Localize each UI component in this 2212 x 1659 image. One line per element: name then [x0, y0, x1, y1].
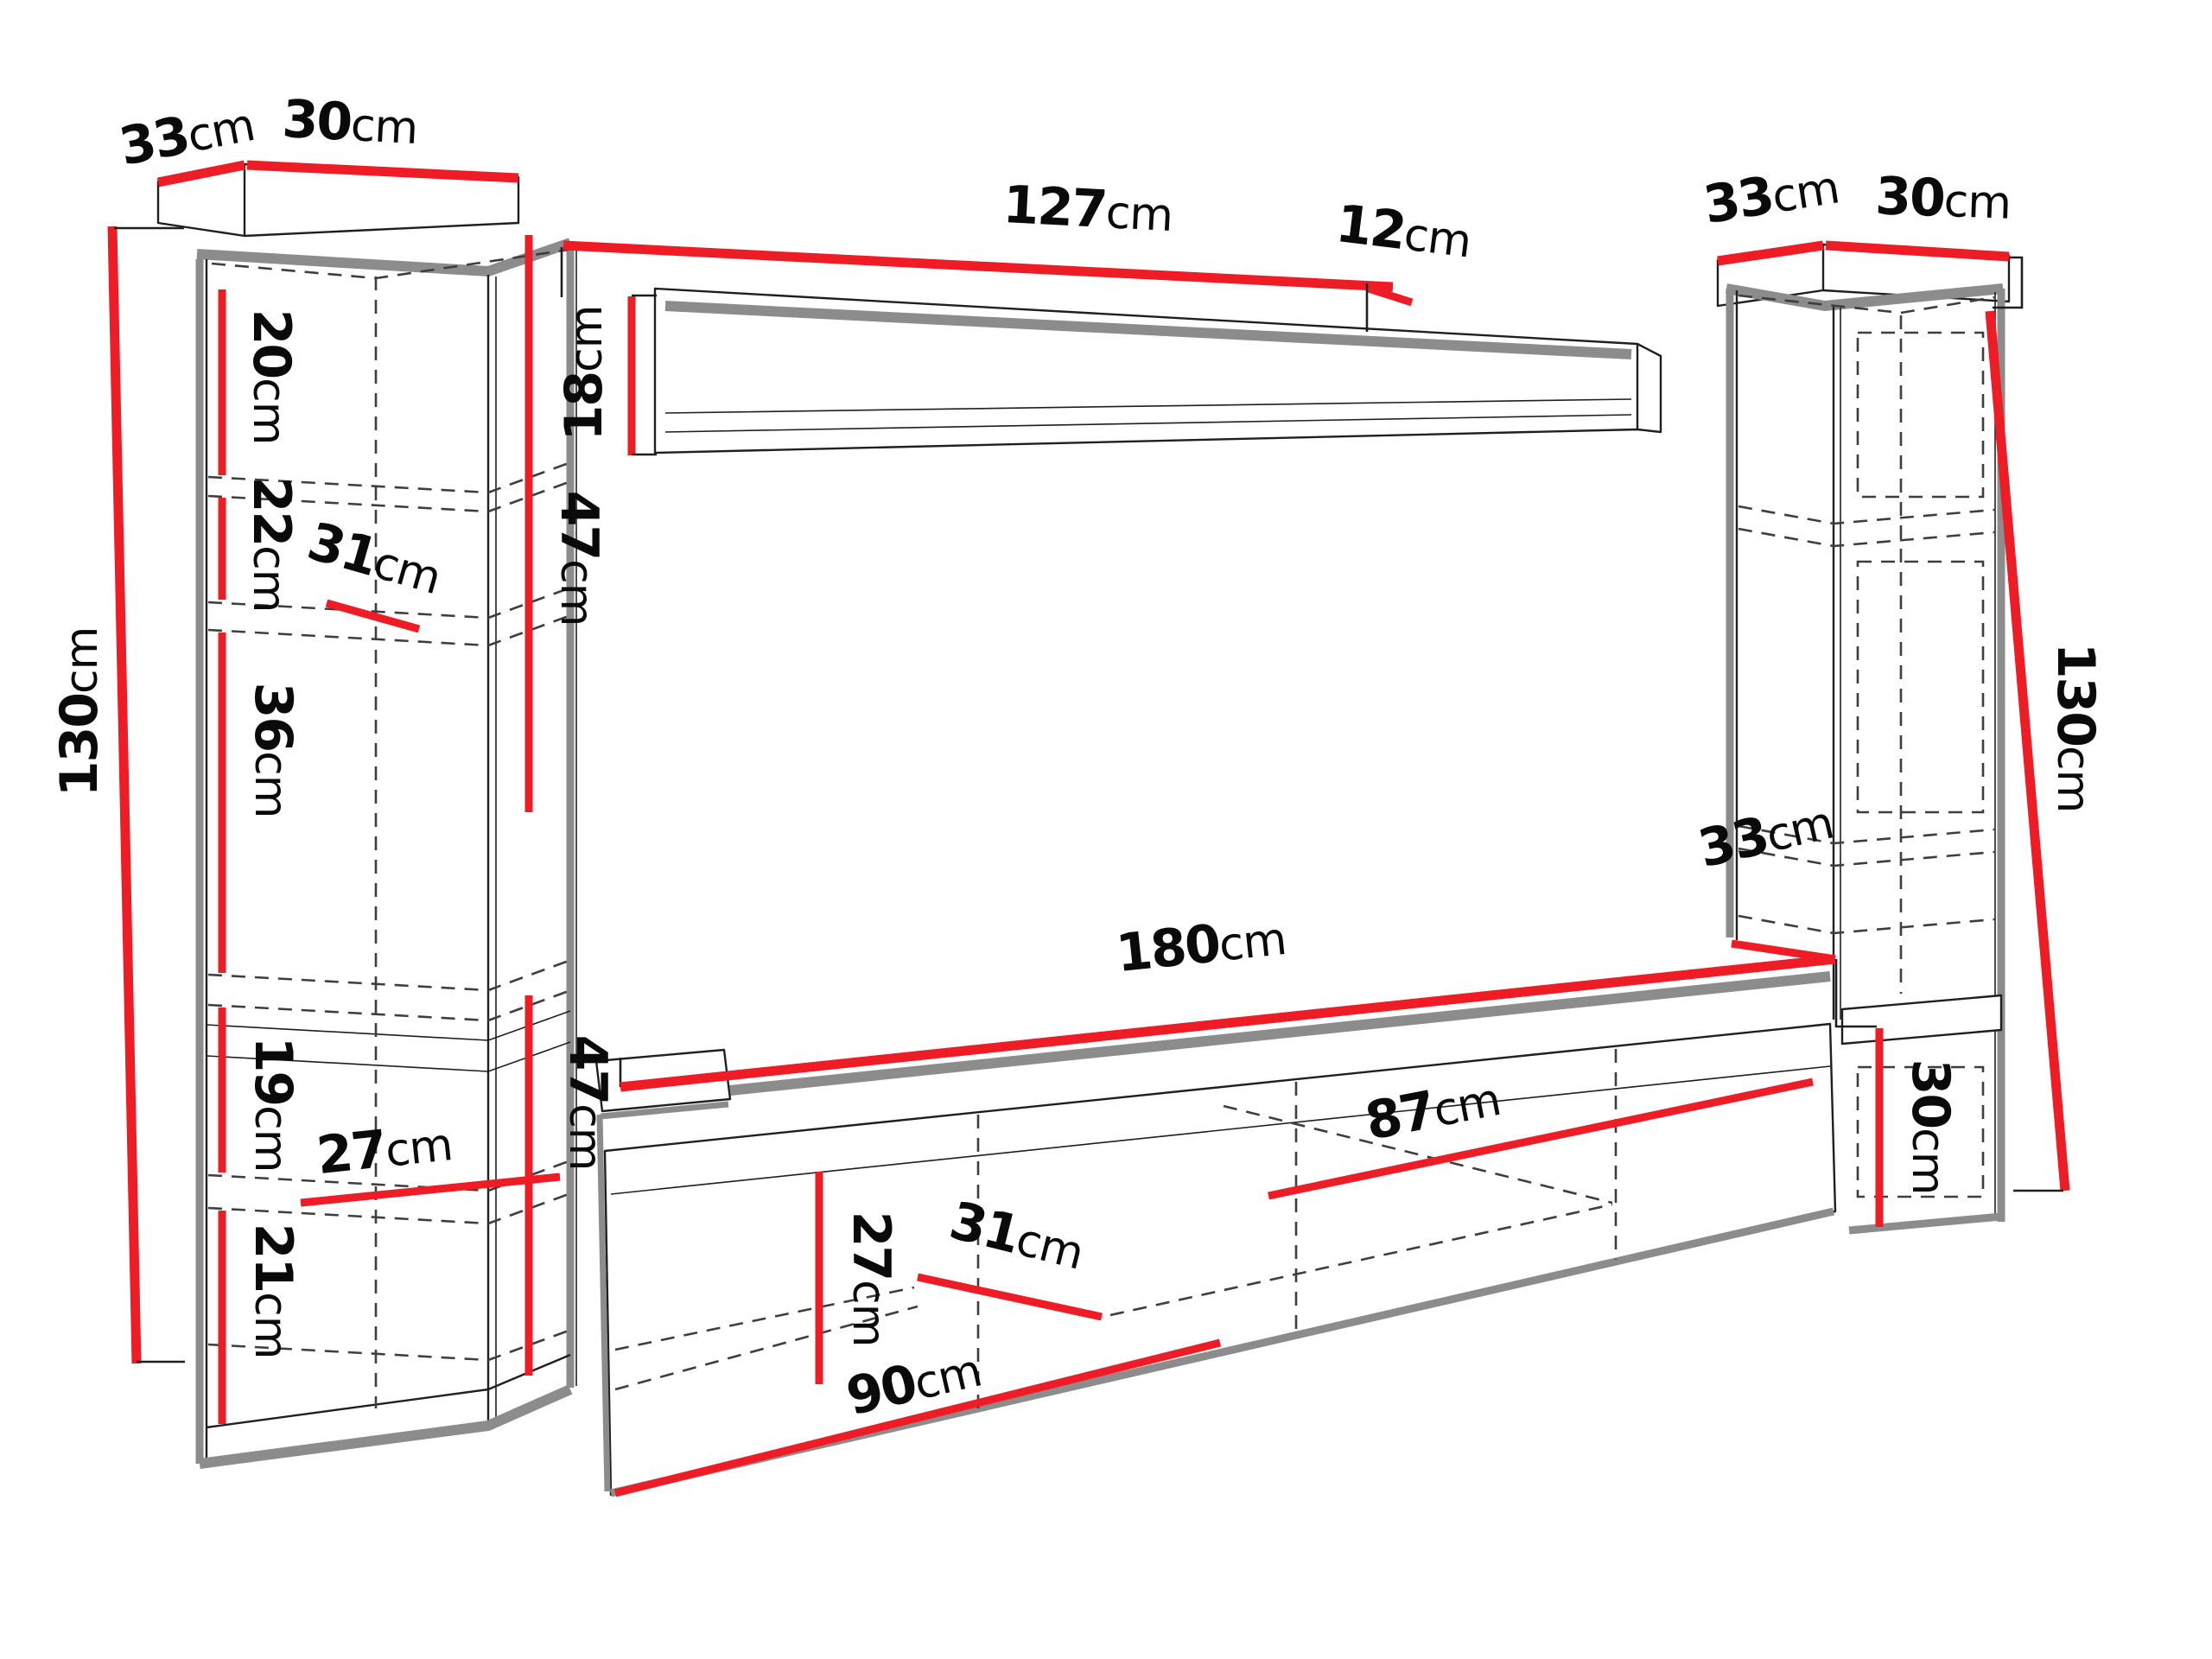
label-left-shelf-depth: 31cm [302, 512, 448, 607]
label-left-sec4: 19cm [243, 1037, 303, 1173]
label-left-top-width: 30cm [281, 89, 419, 156]
label-shelf-height: 18cm [554, 306, 614, 442]
right-cabinet-shelfA-dashed-a [1738, 506, 1994, 524]
right-cabinet-door-dashed-mid [1858, 562, 1983, 812]
label-right-lower-height: 30cm [1900, 1059, 1961, 1195]
left-cabinet [112, 164, 576, 1467]
dim-line-shelf-width [563, 245, 1393, 287]
right-cabinet-door-dashed-upper [1858, 333, 1983, 497]
left-cabinet-shelf3-dashed-a [208, 961, 569, 990]
label-shelf-end-depth: 12cm [1332, 194, 1474, 270]
wall-shelf [562, 245, 1661, 455]
furniture-dimension-diagram: 33cm 30cm 130cm 20cm 22cm 31cm 36cm 19cm… [0, 0, 2212, 1659]
label-left-sec2: 22cm [241, 477, 302, 613]
left-cabinet-bottom-shadow [200, 1389, 570, 1464]
label-left-sec1: 20cm [241, 309, 302, 445]
label-left-sec5: 21cm [243, 1224, 303, 1359]
right-cabinet-lower-cap [1842, 995, 2001, 1044]
label-left-sec3: 36cm [243, 683, 303, 818]
left-cabinet-shelf4-dashed-b [208, 1194, 569, 1224]
label-stand-inner-height: 27cm [841, 1211, 901, 1347]
label-right-top-depth: 33cm [1700, 155, 1843, 236]
label-left-height: 130cm [49, 627, 110, 798]
dim-line-left-shelf-depth [327, 603, 419, 629]
label-left-side-upper: 47cm [549, 491, 609, 626]
label-stand-right-depth: 33cm [1693, 791, 1838, 880]
tv-stand-front-face [605, 1024, 1835, 1495]
label-right-height: 130cm [2045, 643, 2106, 813]
label-shelf-width: 127cm [1001, 175, 1174, 244]
label-stand-height: 47cm [557, 1035, 618, 1171]
left-cabinet-shelf3-dashed-b [208, 991, 569, 1020]
right-cabinet-shelfA-dashed-b [1738, 529, 1994, 546]
diagram-canvas: 33cm 30cm 130cm 20cm 22cm 31cm 36cm 19cm… [0, 0, 2212, 1659]
label-left-inner-width: 27cm [314, 1112, 454, 1186]
label-stand-width: 180cm [1114, 906, 1289, 984]
label-right-top-width: 30cm [1874, 166, 2012, 231]
right-cabinet-bottom-shadow [1849, 1217, 2001, 1230]
tv-stand [596, 959, 1835, 1495]
dim-line-left-height [112, 226, 137, 1363]
right-cabinet-lower-depth-dashed [1738, 916, 1994, 933]
